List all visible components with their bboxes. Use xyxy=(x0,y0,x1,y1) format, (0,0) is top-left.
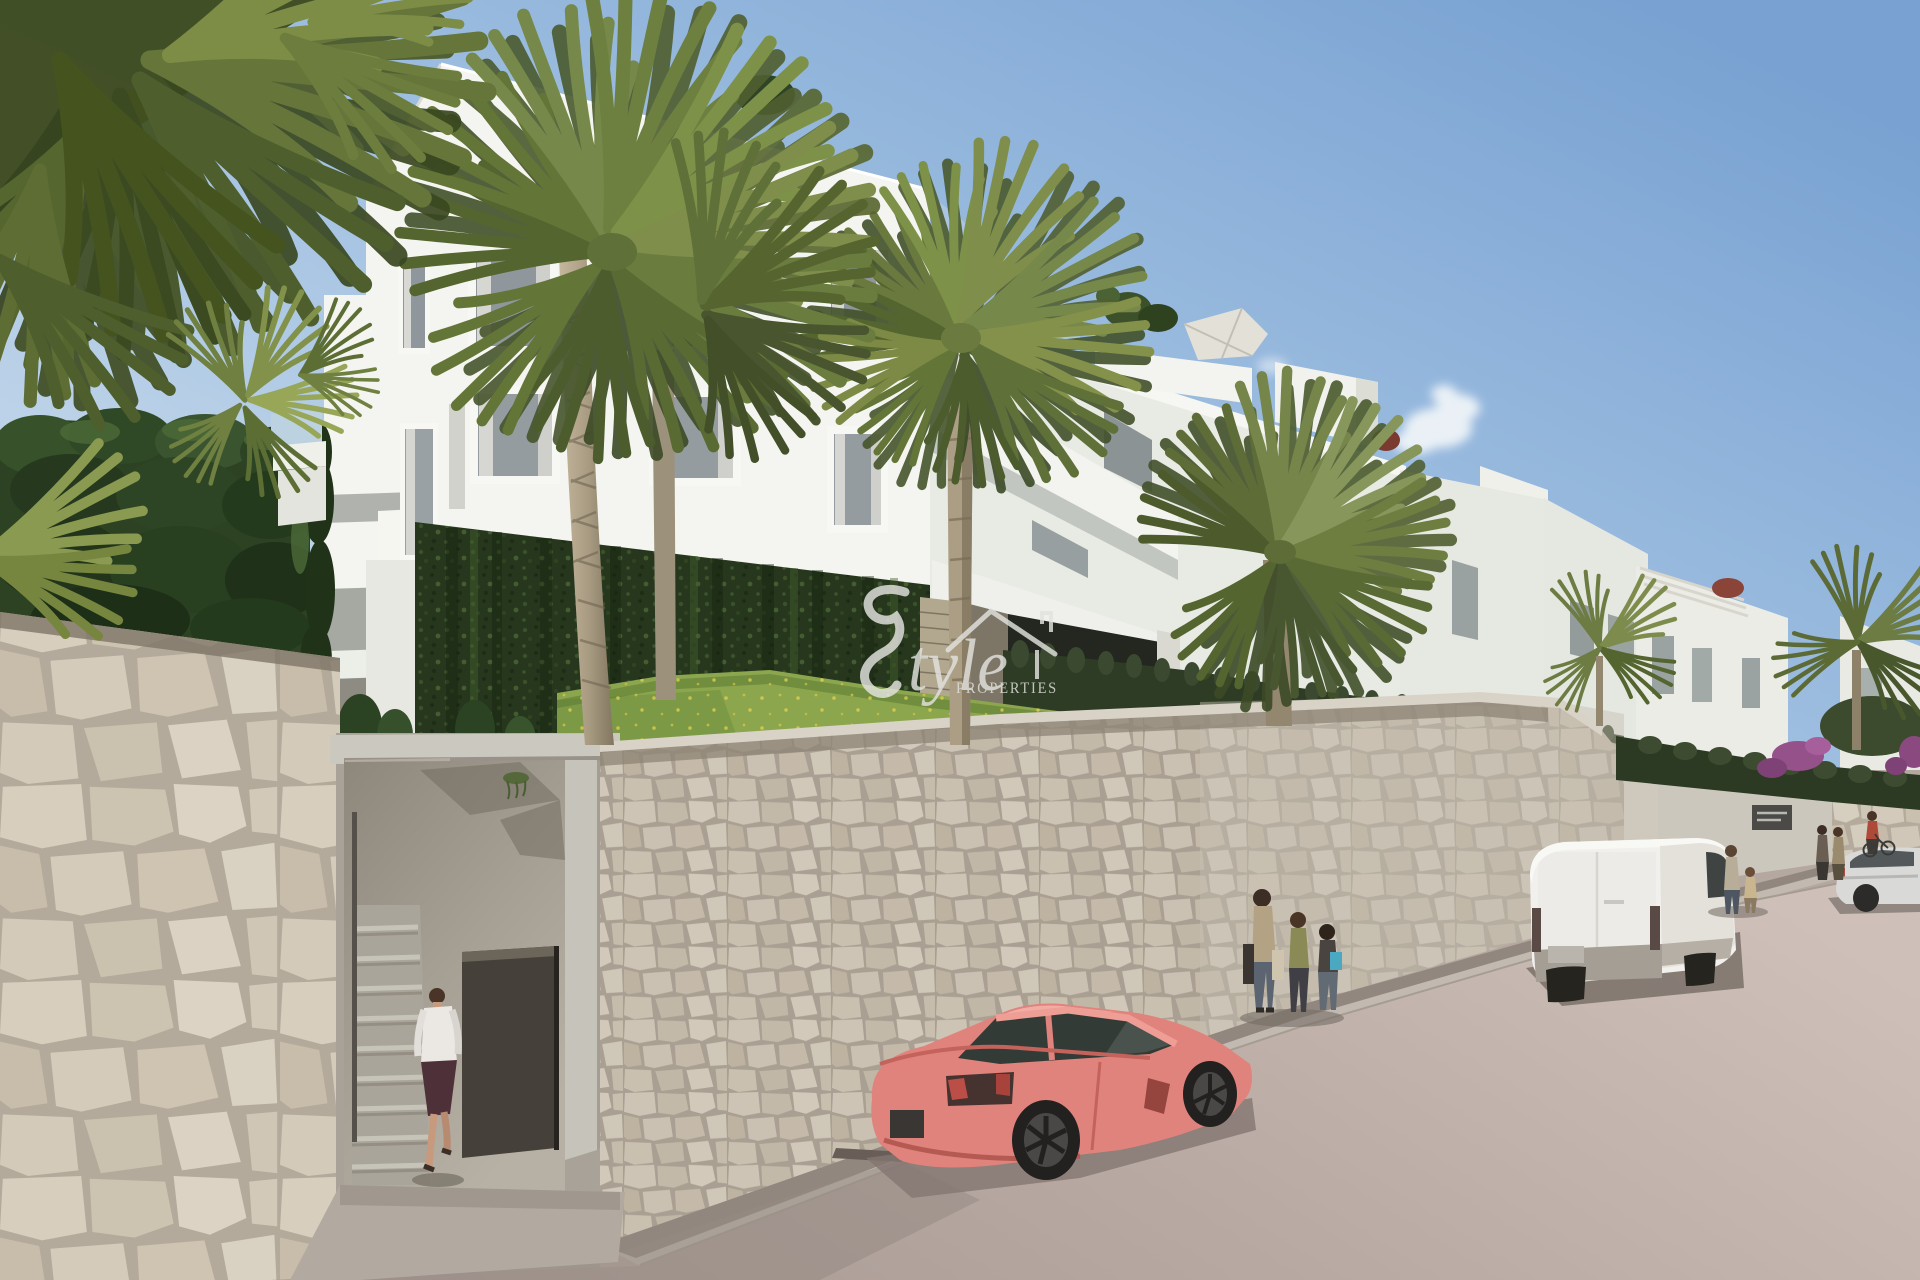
svg-text:PROPERTIES: PROPERTIES xyxy=(956,680,1058,697)
